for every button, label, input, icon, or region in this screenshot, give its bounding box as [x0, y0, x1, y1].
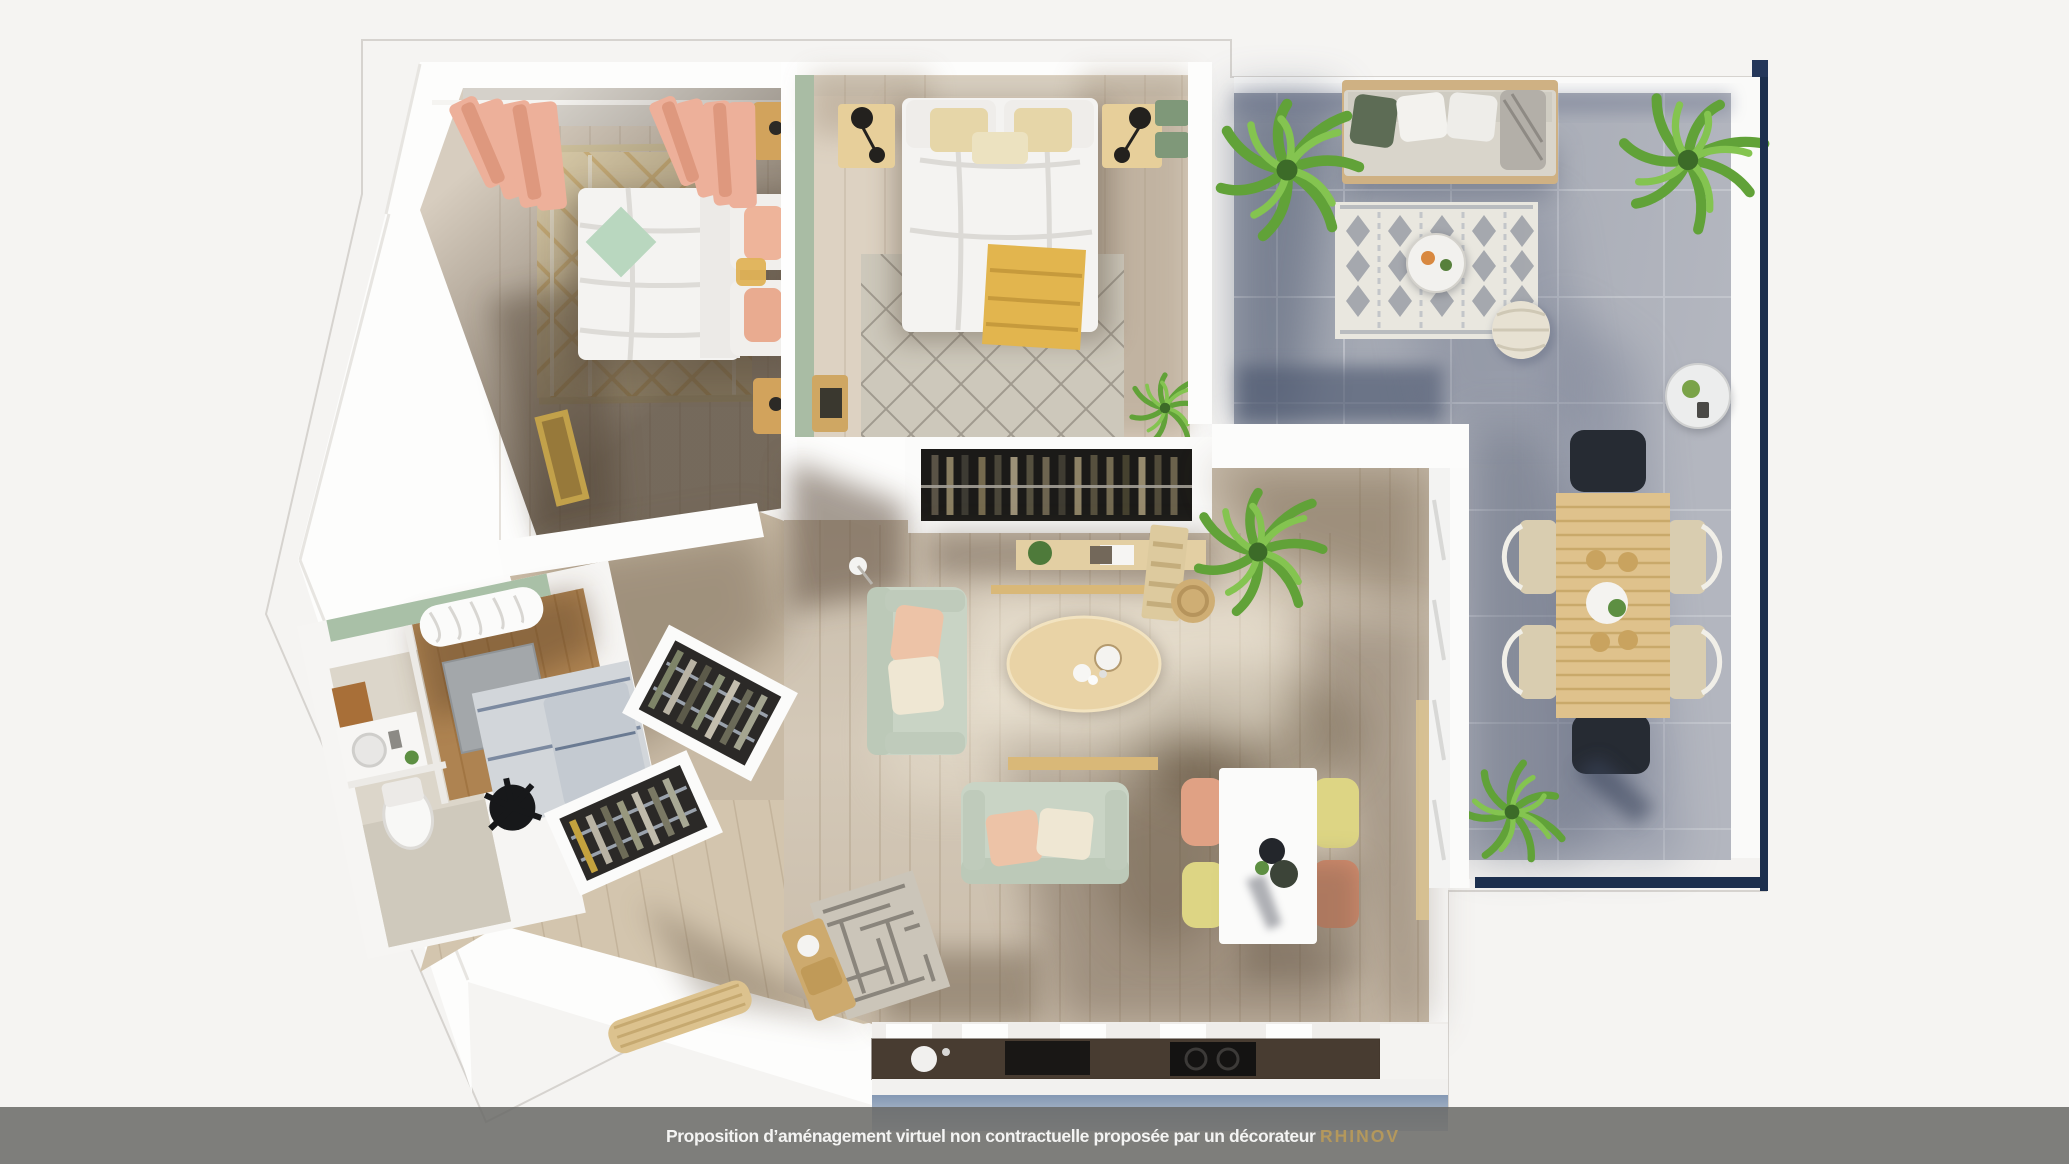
svg-text:Proposition d’aménagement virt: Proposition d’aménagement virtuel non co…	[666, 1126, 1400, 1146]
